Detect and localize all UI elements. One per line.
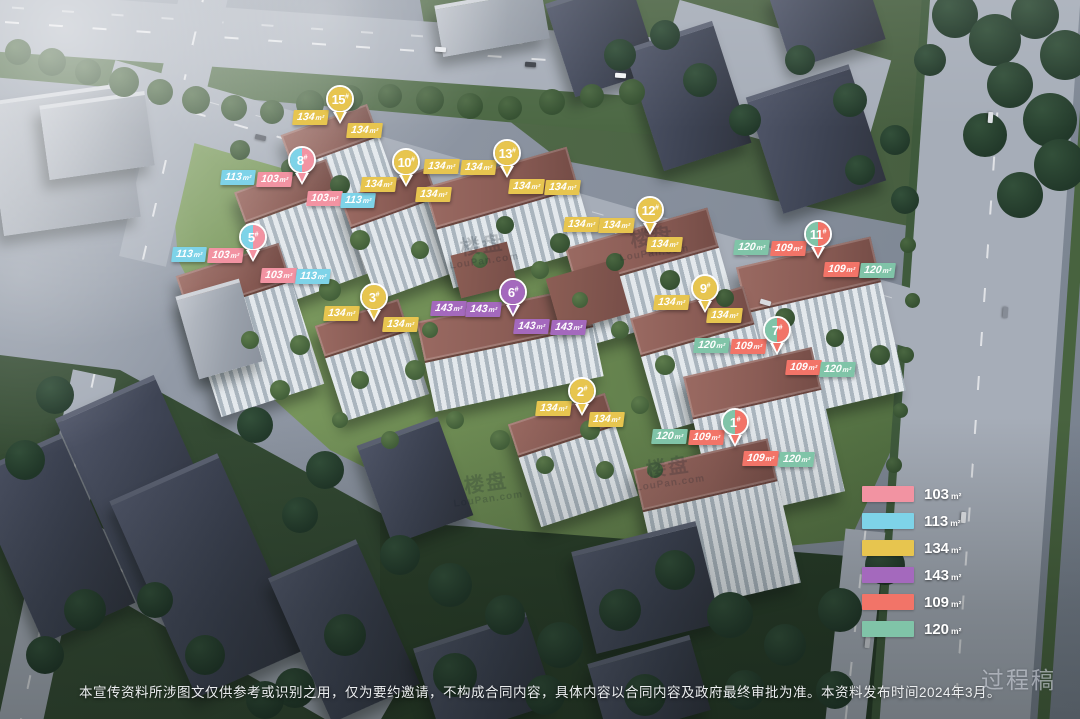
pin-hash: # <box>737 416 740 423</box>
pin-tail <box>509 305 517 314</box>
legend-row-113: 113m² <box>862 513 961 529</box>
pin-balloon: 15# <box>326 85 354 113</box>
legend-unit: m² <box>951 626 961 636</box>
building-pin-11: 11# <box>801 220 835 262</box>
legend-swatch <box>862 621 914 637</box>
pin-number: 1# <box>730 415 740 430</box>
building-pin-1: 1# <box>718 408 752 450</box>
building-pin-6: 6# <box>496 278 530 320</box>
pin-balloon: 2# <box>568 377 596 405</box>
pin-number: 8# <box>297 153 307 168</box>
pin-tail <box>249 250 257 259</box>
draft-watermark: 过程稿 <box>981 661 1056 695</box>
pin-hash: # <box>255 231 258 238</box>
building-pin-9: 9# <box>688 274 722 316</box>
pin-balloon: 3# <box>360 283 388 311</box>
pin-number: 11# <box>810 227 826 242</box>
pin-number: 10# <box>398 155 415 170</box>
pin-balloon: 1# <box>721 408 749 436</box>
legend-unit: m² <box>951 545 961 555</box>
building-pin-13: 13# <box>490 139 524 181</box>
pin-hash: # <box>512 147 515 154</box>
pin-number: 2# <box>577 384 587 399</box>
legend-swatch <box>862 567 914 583</box>
building-pin-7: 7# <box>760 316 794 358</box>
building-pin-8: 8# <box>285 146 319 188</box>
area-legend: 103m²113m²134m²143m²109m²120m² <box>862 486 961 648</box>
pin-hash: # <box>707 282 710 289</box>
pin-hash: # <box>304 154 307 161</box>
building-pin-3: 3# <box>357 283 391 325</box>
pin-number: 3# <box>369 290 379 305</box>
legend-swatch <box>862 540 914 556</box>
legend-unit: m² <box>951 572 961 582</box>
pin-tail <box>503 166 511 175</box>
building-pin-15: 15# <box>323 85 357 127</box>
pin-tail <box>814 247 822 256</box>
legend-row-134: 134m² <box>862 540 961 556</box>
pin-tail <box>646 223 654 232</box>
legend-swatch <box>862 513 914 529</box>
legend-row-109: 109m² <box>862 594 961 610</box>
pin-hash: # <box>779 324 782 331</box>
pin-tail <box>298 173 306 182</box>
pin-balloon: 10# <box>392 148 420 176</box>
pin-tail <box>578 404 586 413</box>
pin-balloon: 8# <box>288 146 316 174</box>
building-pin-12: 12# <box>633 196 667 238</box>
pin-balloon: 6# <box>499 278 527 306</box>
legend-unit: m² <box>950 518 960 528</box>
pin-balloon: 12# <box>636 196 664 224</box>
legend-row-143: 143m² <box>862 567 961 583</box>
building-pin-10: 10# <box>389 148 423 190</box>
pin-number: 5# <box>248 230 258 245</box>
pin-tail <box>370 310 378 319</box>
pin-tail <box>402 175 410 184</box>
legend-label: 143m² <box>924 567 961 584</box>
pin-hash: # <box>376 291 379 298</box>
legend-label: 103m² <box>924 486 961 503</box>
building-pin-5: 5# <box>236 223 270 265</box>
pin-hash: # <box>584 385 587 392</box>
pin-tail <box>773 343 781 352</box>
legend-row-103: 103m² <box>862 486 961 502</box>
pin-tail <box>336 112 344 121</box>
legend-unit: m² <box>951 599 961 609</box>
pin-number: 12# <box>642 203 659 218</box>
pin-balloon: 11# <box>804 220 832 248</box>
pin-tail <box>701 301 709 310</box>
legend-swatch <box>862 594 914 610</box>
pin-tail <box>731 435 739 444</box>
pin-hash: # <box>655 204 658 211</box>
legend-label: 120m² <box>924 621 961 638</box>
legend-swatch <box>862 486 914 502</box>
pin-hash: # <box>345 93 348 100</box>
legend-label: 113m² <box>924 513 961 530</box>
legend-label: 134m² <box>924 540 961 557</box>
pin-hash: # <box>823 228 826 235</box>
pin-number: 7# <box>772 323 782 338</box>
legend-row-120: 120m² <box>862 621 961 637</box>
legend-unit: m² <box>951 491 961 501</box>
pin-balloon: 7# <box>763 316 791 344</box>
pin-balloon: 9# <box>691 274 719 302</box>
pin-balloon: 13# <box>493 139 521 167</box>
pin-hash: # <box>411 156 414 163</box>
pin-balloon: 5# <box>239 223 267 251</box>
building-pin-2: 2# <box>565 377 599 419</box>
pin-number: 6# <box>508 285 518 300</box>
disclaimer-text: 本宣传资料所涉图文仅供参考或识别之用，仅为要约邀请，不构成合同内容，具体内容以合… <box>0 681 1080 701</box>
pin-hash: # <box>515 286 518 293</box>
legend-label: 109m² <box>924 594 961 611</box>
pin-number: 15# <box>332 92 349 107</box>
pin-number: 9# <box>700 281 710 296</box>
brochure-aerial-render: 楼盘LouPan.com楼盘LouPan.com楼盘LouPan.com楼盘Lo… <box>0 0 1080 719</box>
pin-number: 13# <box>499 146 516 161</box>
